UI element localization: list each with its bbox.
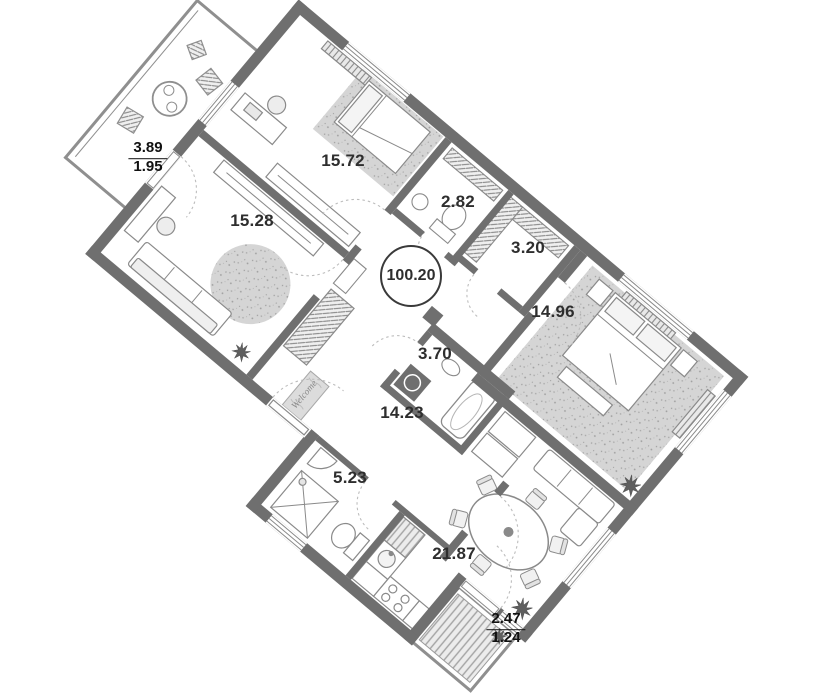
room-area-label-shower-room: 5.23 <box>333 468 367 488</box>
room-area-label-storage: 3.20 <box>511 238 545 258</box>
balcony-area-label-northwest: 3.89 1.95 <box>128 140 167 176</box>
balcony-reduced-area: 1.95 <box>128 159 167 176</box>
balcony-area-label-southeast: 2.47 1.24 <box>486 611 525 647</box>
room-area-label-wc: 2.82 <box>441 192 475 212</box>
room-area-label-hallway: 14.23 <box>380 403 424 423</box>
wc-sink <box>409 191 432 214</box>
room-area-label-bedroom-top: 15.72 <box>321 151 365 171</box>
floor-plan-canvas: Welcome <box>0 0 817 700</box>
room-area-label-bathroom: 3.70 <box>418 344 452 364</box>
balcony-reduced-area: 1.24 <box>486 630 525 647</box>
total-area-value: 100.20 <box>387 267 436 285</box>
total-area-badge: 100.20 <box>380 245 442 307</box>
room-area-label-bedroom-right: 14.96 <box>531 302 575 322</box>
balcony-full-area: 3.89 <box>128 140 167 159</box>
apartment-rotated-group: Welcome <box>0 0 748 700</box>
balcony-full-area: 2.47 <box>486 611 525 630</box>
room-area-label-living-room: 15.28 <box>230 211 274 231</box>
room-area-label-kitchen-living: 21.87 <box>432 544 476 564</box>
floor-plan-page: Welcome <box>0 0 817 700</box>
